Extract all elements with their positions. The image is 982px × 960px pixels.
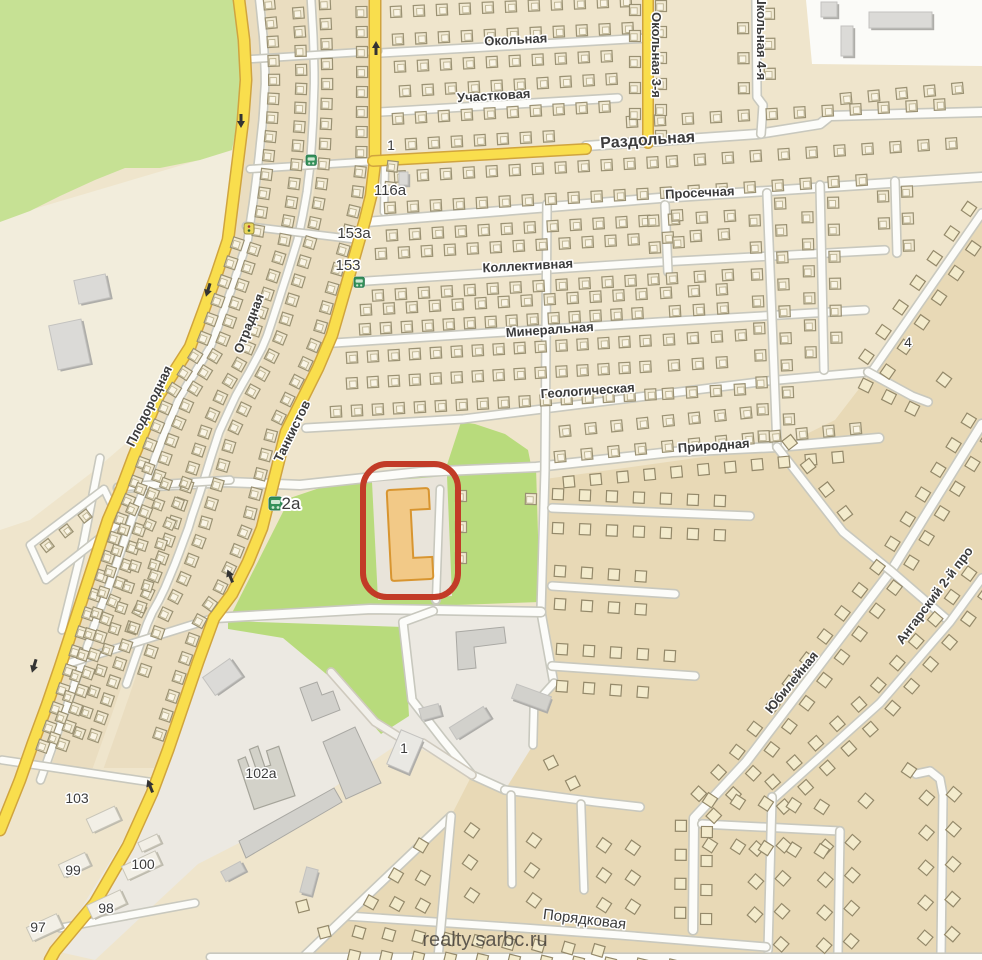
svg-text:4: 4 bbox=[904, 334, 912, 350]
svg-text:98: 98 bbox=[98, 900, 114, 916]
svg-text:Школьная 4-я: Школьная 4-я bbox=[754, 0, 769, 80]
svg-text:97: 97 bbox=[30, 919, 46, 935]
svg-text:116а: 116а bbox=[374, 182, 407, 199]
svg-text:1: 1 bbox=[387, 137, 395, 153]
svg-text:Окольная 3-я: Окольная 3-я bbox=[649, 12, 664, 98]
svg-text:realty.sarbc.ru: realty.sarbc.ru bbox=[422, 929, 547, 951]
svg-text:153а: 153а bbox=[337, 225, 371, 242]
svg-text:153: 153 bbox=[335, 257, 360, 274]
svg-text:100: 100 bbox=[131, 856, 155, 872]
svg-text:99: 99 bbox=[65, 862, 81, 878]
svg-text:102а: 102а bbox=[245, 765, 276, 781]
svg-text:2а: 2а bbox=[282, 494, 301, 513]
svg-text:103: 103 bbox=[65, 790, 89, 806]
svg-text:1: 1 bbox=[400, 740, 408, 756]
